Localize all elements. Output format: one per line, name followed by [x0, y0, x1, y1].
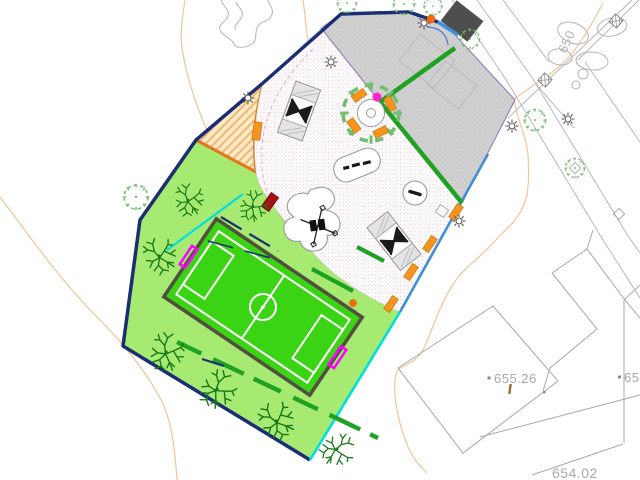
- lamp-icon: [562, 113, 575, 126]
- spot-elevation-label: 655.26: [494, 371, 537, 386]
- lamp-icon: [325, 56, 338, 69]
- marker-orange-dot: [427, 15, 435, 23]
- survey-point: [618, 376, 621, 379]
- lamp-icon: [453, 215, 466, 228]
- picnic-table: [358, 100, 385, 127]
- survey-point: [543, 391, 546, 394]
- site-plan-canvas: 650 655.26 654 654.02: [0, 0, 640, 480]
- marker-orange-dot: [350, 300, 357, 307]
- spring-rider-zone: [403, 181, 427, 205]
- spot-elevation-label: 654: [624, 370, 640, 385]
- lamp-icon: [506, 120, 519, 133]
- spot-elevation-label: 654.02: [552, 465, 598, 480]
- lamp-icon: [242, 92, 255, 105]
- marker-magenta-dot: [373, 93, 382, 102]
- site-plan-drawing: 650 655.26 654 654.02: [0, 0, 640, 480]
- survey-point: [488, 377, 491, 380]
